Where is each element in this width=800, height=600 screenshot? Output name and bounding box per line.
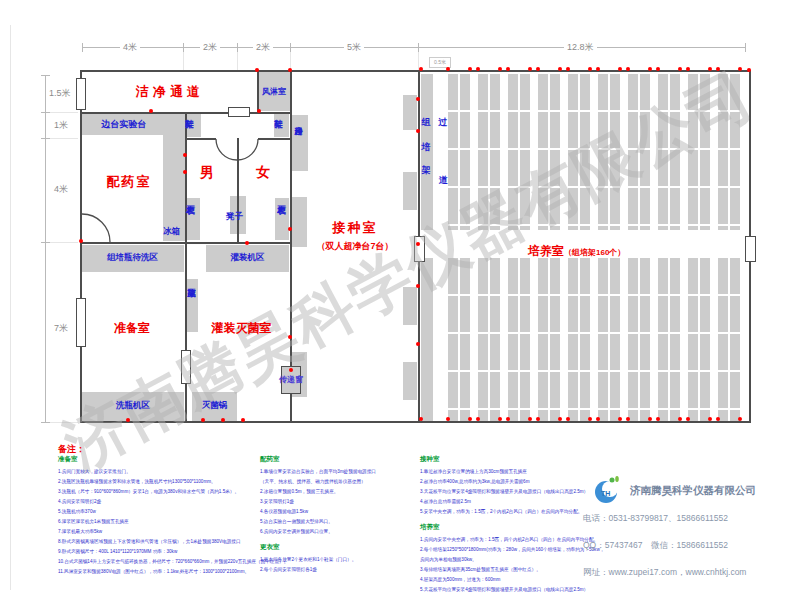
side-bench-block-vertical [163, 113, 185, 215]
extension-line [48, 112, 78, 113]
label-culture-sub: （组培架160个） [564, 248, 625, 257]
culture-rack-shelf [628, 74, 650, 230]
notes-line: 5.安装中央空调，功率为：1.5匹，2个内机2台风口（四台）在房间内平均分配。 [420, 507, 576, 517]
red-node-dot [416, 97, 420, 101]
locker-block-left [186, 198, 200, 240]
notes-line: 1.靠近超净台安装位置的墙上方高30cm预留五孔插座 [420, 467, 576, 477]
red-node-dot [476, 67, 480, 71]
notes-line: 6.房间内安装空调并预留风口位置。 [260, 527, 412, 537]
door-arc-pharmacy [82, 214, 110, 242]
red-node-dot [558, 417, 562, 421]
label-stool: 凳子 [226, 211, 243, 223]
label-fridge: 冰箱 [163, 226, 180, 238]
clean-bench-unit [403, 287, 417, 325]
window-symbol [76, 298, 86, 347]
red-node-dot [419, 67, 423, 71]
red-node-dot [747, 68, 751, 72]
red-node-dot [446, 417, 450, 421]
label-aisle: 过道 [436, 110, 449, 226]
red-node-dot [241, 418, 245, 422]
label-culture-rack: 组培架 [419, 110, 432, 182]
red-node-dot [618, 67, 622, 71]
notes-line: 1.更衣间各放置2个更衣柜和1个鞋架（门口）。 [260, 555, 412, 565]
clean-bench-unit [292, 197, 307, 247]
red-node-dot [716, 417, 720, 421]
red-node-dot [416, 284, 420, 288]
left-dimension-line [45, 75, 46, 422]
red-node-dot [221, 418, 225, 422]
notes-line: 4.房间安装照明灯2盏 [58, 497, 256, 507]
wall-dressing-top-right [258, 138, 290, 140]
culture-rack-shelf [508, 258, 530, 421]
culture-rack-shelf [478, 74, 500, 230]
company-name: 济南腾昊科学仪器有限公司 [630, 484, 756, 498]
culture-rack-shelf [538, 74, 560, 230]
notes-line: 7.灌装机最大功率5kw [58, 527, 256, 537]
tick [41, 242, 50, 243]
notes-line: 4.超净台总功率需留2.5m [420, 497, 576, 507]
label-fill-steril-room: 灌装灭菌室 [193, 320, 290, 337]
door-symbol [414, 236, 425, 262]
culture-rack-shelf [718, 258, 740, 421]
culture-rack-shelf [658, 258, 680, 421]
notes-line: 10.台式灭菌锅14升上方安装空气循环换热器，外径尺寸：720*660*660m… [58, 557, 256, 567]
red-node-dot [678, 67, 682, 71]
red-node-dot [566, 417, 570, 421]
window-symbol [181, 350, 191, 384]
dim-top-2m-a: 2米 [200, 41, 220, 54]
notes-line: 1.靠墙位置安装边台实验台，台面平均3m处预留电源接口 [260, 467, 412, 477]
door-symbol [228, 107, 250, 117]
extension-line [48, 422, 78, 423]
shoe-rack-block-left [186, 113, 201, 137]
red-node-dot [468, 67, 472, 71]
red-node-dot [201, 418, 205, 422]
label-filling-area: 灌装机区 [206, 252, 289, 264]
red-node-dot [648, 67, 652, 71]
label-transfer-window: 传递窗 [271, 374, 311, 385]
culture-rack-shelf [478, 258, 500, 421]
notes-line: 2.每个房间安装照明灯各1盏 [260, 565, 412, 575]
red-node-dot [708, 67, 712, 71]
company-phone: 电话：0531-83799817、15866611552 [583, 513, 728, 525]
dim-left-1m: 1米 [51, 119, 71, 132]
clean-bench-unit [403, 95, 417, 130]
tick [41, 138, 50, 139]
red-node-dot [626, 417, 630, 421]
red-node-dot [288, 68, 292, 72]
window-symbol [76, 78, 86, 110]
culture-rack-shelf [568, 258, 590, 421]
tick [183, 43, 184, 52]
label-clean-corridor: 洁净通道 [100, 83, 240, 101]
wall-prep-top [80, 242, 290, 244]
red-node-dot [416, 242, 420, 246]
red-node-dot [183, 170, 187, 174]
wall-bottom [80, 421, 751, 423]
culture-rack-shelf [598, 258, 620, 421]
notes-line: 2.冰箱位置预留0.5m，预留三孔插座。 [260, 487, 412, 497]
red-node-dot [686, 67, 690, 71]
notes-line: 3.天花板平均位置安装4盏照明灯和预留墙壁开关及电源接口（电线出口高度2.5m） [420, 487, 576, 497]
clean-bench-unit [403, 362, 417, 400]
notes-line: 1.房间内安装中央空调，功率为：1.5匹，四个内机2台风口（四台）在房间内平均分… [420, 535, 576, 545]
red-node-dot [558, 67, 562, 71]
red-node-dot [288, 335, 292, 339]
red-node-dot [588, 417, 592, 421]
wall-right-upper [749, 70, 751, 238]
red-node-dot [288, 227, 292, 231]
red-node-dot [588, 67, 592, 71]
red-node-dot [79, 239, 83, 243]
label-culture-room-group: 培养室（组培架160个） [528, 241, 625, 260]
floorplan-page: 4米 2米 2米 5米 12.8米 1.5米 1米 4米 7米 0.5米 [0, 0, 800, 600]
notes-line: （天平、纯水机、搅拌器、磁力搅拌机等仪器使用） [260, 477, 412, 487]
notes-line: 房间内为单相电预留30kw。 [420, 555, 576, 565]
culture-rack-shelf [448, 258, 470, 421]
tick [237, 43, 238, 52]
wall-left [80, 70, 82, 423]
notes-section-heading: 准备室 [58, 455, 256, 464]
label-female: 女 [256, 164, 270, 182]
label-pharmacy-room: 配药室 [98, 173, 160, 191]
dim-left-4m: 4米 [51, 183, 71, 196]
red-node-dot [506, 417, 510, 421]
logo-text: TH [601, 490, 610, 497]
culture-rack-shelf [448, 74, 470, 230]
red-node-dot [257, 109, 261, 113]
wall-right-lower [749, 258, 751, 423]
red-node-dot [419, 417, 423, 421]
extension-line [237, 50, 238, 70]
notes-line: 2.每个组培架1250*500*1800mm(功率为：280w，房间共160个组… [420, 545, 576, 555]
notes-line: 3.每排组培架离墙距离35cm处预留五孔插座（图中红点）。 [420, 565, 576, 575]
red-node-dot [528, 67, 532, 71]
culture-rack-shelf [688, 74, 710, 230]
culture-rack-shelf [658, 74, 680, 230]
wall-dressing-top-left [185, 138, 216, 140]
notes-line: 3.安装照明灯1盏 [260, 497, 412, 507]
label-bottle-wait-area: 组培瓶待洗区 [81, 252, 184, 264]
notes-column-inoculation: 接种室1.靠近超净台安装位置的墙上方高30cm预留五孔插座2.超净台功率400w… [420, 455, 576, 595]
dim-top-4m: 4米 [120, 41, 140, 54]
culture-rack-shelf [568, 74, 590, 230]
red-node-dot [506, 67, 510, 71]
red-node-dot [446, 67, 450, 71]
red-node-dot [289, 368, 293, 372]
notes-line: 2.超净台功率400w,总功率约为3kw,总电源开关需留6m [420, 477, 576, 487]
notes-line: 5.天花板平均位置安装4盏照明灯和预留墙壁开关及电源接口（电线出口高度2.5m） [420, 585, 576, 595]
door-symbol [745, 236, 756, 262]
notes-line: 11.风淋室安装和预留380V电源（图中红点），功率：1.1kw,外形尺寸：13… [58, 567, 256, 577]
red-node-dot [678, 417, 682, 421]
notes-line: 1.房间门宽较大，建议安装推拉门。 [58, 467, 256, 477]
red-node-dot [716, 67, 720, 71]
red-node-dot [536, 417, 540, 421]
company-logo-icon: TH [592, 474, 626, 508]
red-node-dot [498, 417, 502, 421]
label-bottle-washer-area: 洗瓶机区 [90, 400, 176, 412]
extension-line [183, 50, 184, 70]
culture-rack-shelf [538, 258, 560, 421]
red-node-dot [648, 417, 652, 421]
red-node-dot [626, 67, 630, 71]
notes-line: 6.灌装区灌装机旁1米预留五孔插座 [58, 517, 256, 527]
notes-column-pharmacy: 配药室1.靠墙位置安装边台实验台，台面平均3m处预留电源接口（天平、纯水机、搅拌… [260, 455, 412, 575]
red-node-dot [416, 129, 420, 133]
extension-line [290, 50, 291, 70]
extension-line [48, 138, 78, 139]
notes-column-prep: 准备室1.房间门宽较大，建议安装推拉门。2.洗瓶区洗瓶机靠墙预留水管和排水管道，… [58, 455, 256, 577]
tick [745, 43, 746, 52]
page-edge-line [10, 25, 11, 590]
red-node-dot [536, 67, 540, 71]
tick [418, 43, 419, 52]
tick [290, 43, 291, 52]
red-node-dot [468, 417, 472, 421]
red-node-dot [528, 417, 532, 421]
notes-section-heading: 培养室 [420, 523, 576, 532]
label-male: 男 [200, 164, 214, 182]
culture-rack-shelf [718, 74, 740, 230]
wall-culture-left-lower [418, 258, 420, 423]
red-node-dot [738, 67, 742, 71]
red-node-dot [566, 67, 570, 71]
label-culture-room: 培养室 [528, 244, 564, 258]
notes-line: 8.卧式灭菌锅离墙区域预留上下水管道和供气管道（常压锅），旁1米处预留380V电… [58, 537, 256, 547]
red-node-dot [416, 342, 420, 346]
notes-section-heading: 配药室 [260, 455, 412, 464]
red-node-dot [708, 417, 712, 421]
dim-left-7m: 7米 [51, 322, 71, 335]
notes-line: 2.洗瓶区洗瓶机靠墙预留水管和排水管道，洗瓶机尺寸约1300*500*1100m… [58, 477, 256, 487]
notes-line: 9.卧式灭菌锅尺寸：400L 1410*1120*1970MM 功率：30kw [58, 547, 256, 557]
red-node-dot [656, 67, 660, 71]
red-node-dot [498, 67, 502, 71]
notes-section-heading: 接种室 [420, 455, 576, 464]
red-node-dot [738, 417, 742, 421]
red-node-dot [618, 417, 622, 421]
culture-rack-shelf [628, 258, 650, 421]
clean-bench-unit [403, 172, 417, 210]
culture-rack-shelf [508, 74, 530, 230]
culture-rack-shelf [421, 258, 433, 421]
shoe-rack-block-right [274, 113, 289, 137]
top-dimension-line [82, 47, 745, 48]
clean-bench-block [292, 115, 308, 171]
notes-line: 4.层架高度为500mm，过道为：600mm [420, 575, 576, 585]
red-node-dot [596, 67, 600, 71]
red-node-dot [149, 109, 153, 113]
wall-male-female-divider [237, 138, 239, 242]
tick [41, 112, 50, 113]
locker-block-right [275, 198, 289, 240]
label-inoculation-room: 接种室 [320, 219, 390, 237]
tick [82, 43, 83, 52]
red-node-dot [686, 417, 690, 421]
label-inoculation-sub: （双人超净台7台） [307, 240, 403, 253]
label-prep-room: 准备室 [103, 320, 161, 337]
tick [41, 422, 50, 423]
notes-line: 4.各仪器预留电源1.5kw [260, 507, 412, 517]
dim-left-1-5m: 1.5米 [46, 87, 74, 100]
extension-line [48, 242, 78, 243]
red-node-dot [126, 418, 130, 422]
notes-section-heading: 更衣室 [260, 543, 412, 552]
notes-line: 3.洗瓶机（尺寸：910*600*860mm）安装1台，电源为380v和排水空气… [58, 487, 256, 497]
red-node-dot [656, 417, 660, 421]
red-node-dot [245, 241, 249, 245]
notes-line: 5.洗瓶机功率370w [58, 507, 256, 517]
label-sterilizer: 灭菌锅 [191, 400, 238, 412]
culture-rack-shelf [598, 74, 620, 230]
dim-top-5m: 5米 [344, 41, 364, 54]
red-node-dot [596, 417, 600, 421]
red-node-dot [255, 68, 259, 72]
company-qq-wechat: QQ：57437467 微信：15866611552 [583, 540, 728, 552]
label-side-bench: 边台实验台 [93, 118, 155, 131]
red-node-dot [476, 417, 480, 421]
company-website: 网址：www.zupei17.com，www.cnhtkj.com [583, 567, 746, 579]
culture-rack-shelf [688, 258, 710, 421]
dim-top-2m-b: 2米 [253, 41, 273, 54]
label-air-shower: 风淋室 [258, 86, 290, 97]
notes-line: 5.边台实验台一侧预留大型排风口。 [260, 517, 412, 527]
red-node-dot [183, 153, 187, 157]
tick [41, 75, 50, 76]
dim-top-12-8m: 12.8米 [564, 41, 597, 54]
